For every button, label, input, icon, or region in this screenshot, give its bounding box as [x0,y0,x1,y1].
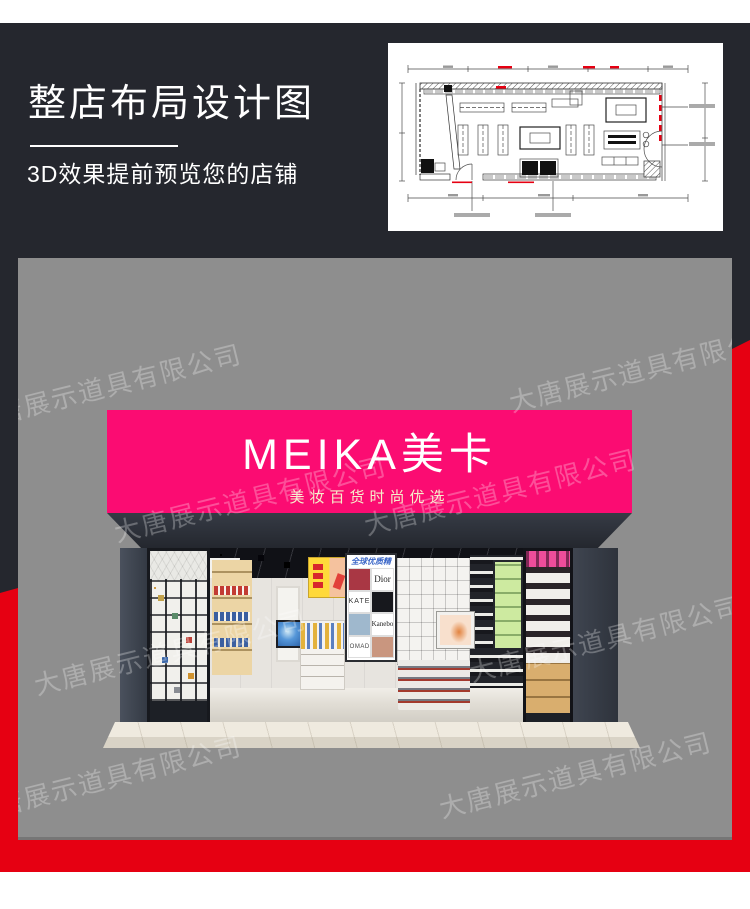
brand-poster-image [371,591,394,614]
wood-drawers [526,663,570,713]
brand-poster-image [348,568,371,591]
store-sign-title: MEIKA美卡 [107,432,632,479]
store-body: 全球优质精品 Dior KATE Kanebo NOMADE [120,548,618,725]
green-backlit-shelf [493,560,523,650]
interior-floor [210,688,523,725]
hex-tile-wall [150,551,207,581]
display-screen-art [437,612,474,648]
red-accent-left [0,585,18,840]
brand-poster-header: 全球优质精品 [348,556,394,568]
floorplan-panel [388,43,723,231]
red-accent-right [732,335,750,840]
watermark: 大唐展示道具有限公司 [505,311,732,419]
bottle-display-cart [398,660,470,710]
floorplan-drawing [388,43,723,231]
blue-product-row [214,612,250,621]
gondola-products [301,623,344,649]
red-product-row [214,586,250,595]
track-lights [220,554,222,556]
brand-label: KATE [348,591,371,614]
right-cabinet-base [526,713,570,722]
brand-poster-image [348,613,371,636]
brand-label: NOMADE [348,636,371,659]
brand-label: Kanebo [371,613,394,636]
store-pillar-left [120,548,147,725]
brand-lightbox-poster: 全球优质精品 Dior KATE Kanebo NOMADE [345,553,397,662]
section-title: 整店布局设计图 [28,84,315,126]
store-pillar-right [573,548,618,725]
product-detail-page: 整店布局设计图 3D效果提前预览您的店铺 [0,0,750,909]
poster-lipstick-image [333,573,346,590]
left-cabinet-products [154,587,156,589]
art-figure [450,621,468,643]
right-window-cabinet [523,548,573,725]
left-window-cabinet [147,548,210,725]
storefront-render-panel: MEIKA美卡 美妆百货时尚优选 [18,258,732,840]
yellow-lightbox-poster [308,557,347,598]
wood-display-shelf [212,560,252,675]
blue-product-row [214,638,250,647]
poster-red-text-marks [313,562,323,588]
title-underline [30,145,178,147]
store-sign-subtitle: 美妆百货时尚优选 [107,486,632,507]
brand-poster-grid: Dior KATE Kanebo NOMADE [348,568,394,658]
store-canopy [103,513,636,550]
section-subtitle: 3D效果提前预览您的店铺 [27,155,298,189]
store-interior: 全球优质精品 Dior KATE Kanebo NOMADE [210,548,523,725]
left-cabinet-shelf-grid [150,579,207,701]
brand-poster-image [371,636,394,659]
makeup-palette-rows [526,567,570,663]
display-screen-globe [276,620,302,648]
right-cabinet-pink-header [526,551,570,567]
brand-label: Dior [371,568,394,591]
front-gondola-shelf [300,620,345,690]
store-sign: MEIKA美卡 美妆百货时尚优选 [107,410,632,513]
red-accent-bottom-band [0,840,750,872]
gondola-shelves [301,651,344,687]
marble-base-sill [103,722,640,748]
marble-veins [103,722,640,748]
